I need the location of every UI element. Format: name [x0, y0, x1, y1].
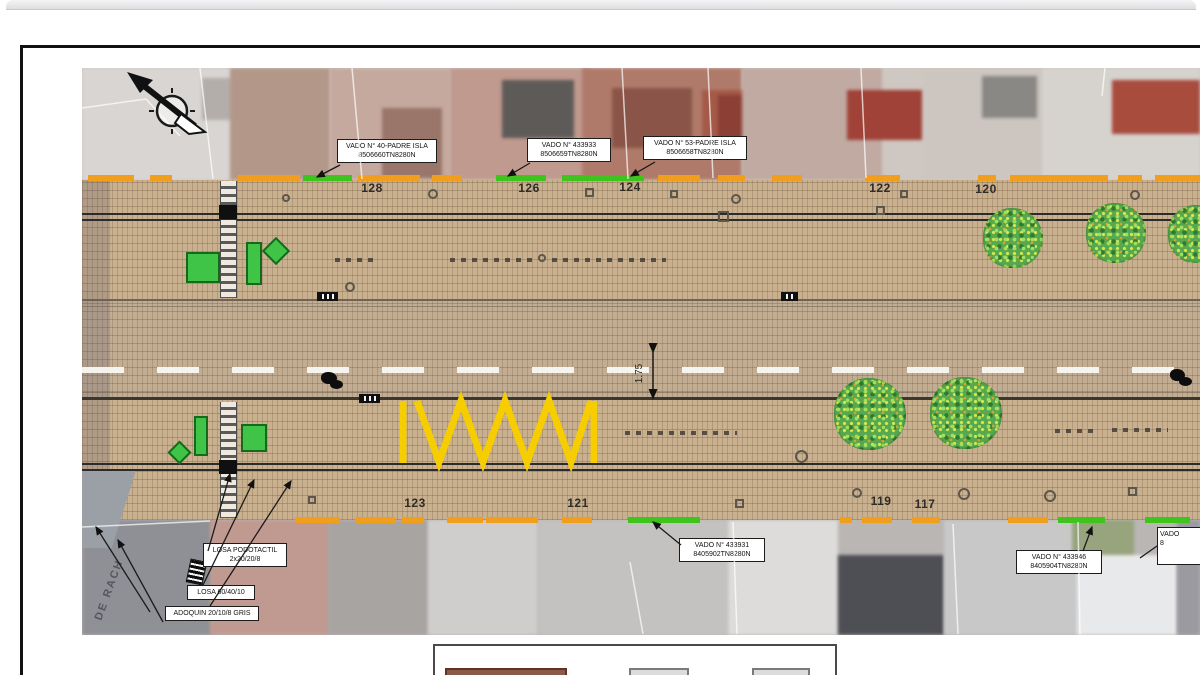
- bollard-strip-icon: [781, 292, 798, 301]
- callout-line: VADO N° 433946: [1019, 553, 1099, 562]
- facade-dash-orange: [718, 175, 745, 181]
- house-number: 120: [975, 182, 997, 196]
- facade-dash-orange: [150, 175, 172, 181]
- callout-vado433946: VADO N° 433946 8405904TN8280N: [1016, 550, 1102, 574]
- sheet-border: [20, 45, 1200, 48]
- facade-dash-orange: [295, 517, 340, 523]
- aerial-patch: [328, 520, 428, 635]
- facade-dash-orange: [978, 175, 996, 181]
- facade-dash-orange: [912, 517, 940, 523]
- bollard-strip-icon: [317, 292, 338, 301]
- callout-line: VADO N° 40-PADRE ISLA: [340, 142, 434, 151]
- tree-icon: [983, 208, 1043, 268]
- aerial-patch: [847, 90, 925, 140]
- manhole-cover: [795, 450, 808, 463]
- manhole-cover: [345, 282, 355, 292]
- house-number: 126: [518, 181, 540, 195]
- aerial-patch: [982, 76, 1037, 118]
- facade-dash-orange: [355, 517, 395, 523]
- manhole-cover: [731, 194, 741, 204]
- aerial-patch: [944, 520, 1084, 635]
- legend-box: [433, 644, 837, 675]
- house-number: 119: [871, 494, 892, 508]
- house-number: 128: [361, 181, 383, 195]
- callout-line: LOSA PODOTACTIL: [206, 546, 284, 555]
- callout-line: 8405904TN8280N: [1019, 562, 1099, 571]
- legend-swatch-grey: [752, 668, 810, 675]
- bench-marker: [194, 416, 208, 456]
- callout-vado433931: VADO N° 433931 8405902TN8280N: [679, 538, 765, 562]
- callout-line: ADOQUIN 20/10/8 GRIS: [168, 609, 256, 618]
- facade-dash-orange: [486, 517, 538, 523]
- parked-bike-icon: [1170, 369, 1185, 381]
- callout-line: LOSA 60/40/10: [190, 588, 252, 597]
- manhole-cover: [1044, 490, 1056, 502]
- joint-marks: [450, 258, 534, 262]
- callout-line: VADO N° 433931: [682, 541, 762, 550]
- callout-line: 8506658TN8280N: [646, 148, 744, 157]
- callout-line: 2x20/20/8: [206, 555, 284, 564]
- aerial-patch: [230, 68, 330, 180]
- vado-dash-green: [303, 175, 352, 181]
- sidewalk-bottom: [82, 470, 1200, 520]
- lane-line: [82, 397, 1200, 400]
- lane-line: [82, 306, 1200, 307]
- parked-bike-icon: [321, 372, 337, 384]
- joint-marks: [1112, 428, 1168, 432]
- house-number: 122: [869, 181, 891, 195]
- callout-vado40: VADO N° 40-PADRE ISLA 8506660TN8280N: [337, 139, 437, 163]
- vado-dash-green: [628, 517, 700, 523]
- manhole-cover: [282, 194, 290, 202]
- facade-dash-orange: [432, 175, 462, 181]
- house-number: 117: [915, 497, 936, 511]
- facade-dash-orange: [1155, 175, 1200, 181]
- tree-icon: [834, 378, 906, 450]
- planter-marker: [241, 424, 267, 452]
- pedestrian-crossing-strip: [220, 472, 237, 518]
- facade-dash-orange: [658, 175, 700, 181]
- planter-marker: [186, 252, 220, 283]
- facade-dash-orange: [1008, 517, 1048, 523]
- bench-marker: [246, 242, 262, 285]
- facade-dash-orange: [402, 517, 424, 523]
- aerial-patch: [428, 520, 538, 635]
- carriageway: [82, 300, 1200, 400]
- utility-box: [1128, 487, 1137, 496]
- joint-marks: [552, 258, 666, 262]
- callout-vado433933: VADO N° 433933 8506659TN8280N: [527, 138, 611, 162]
- callout-vado-cutoff: VADO 8: [1157, 527, 1200, 565]
- facade-dash-orange: [447, 517, 483, 523]
- window-title-bar: [6, 0, 1196, 10]
- aerial-patch: [502, 80, 574, 138]
- utility-box: [308, 496, 316, 504]
- screenshot-page: 128 126 124 122 120 123 121 119 117 1.75…: [0, 0, 1200, 675]
- dimension-label: 1.75: [634, 364, 645, 383]
- utility-box: [876, 206, 885, 215]
- house-number: 123: [404, 496, 426, 510]
- callout-losa604010: LOSA 60/40/10: [187, 585, 255, 600]
- callout-line: 8405902TN8280N: [682, 550, 762, 559]
- vado-dash-green: [1145, 517, 1190, 523]
- sheet-border: [20, 45, 23, 675]
- legend-swatch-red: [445, 668, 567, 675]
- facade-dash-orange: [1010, 175, 1108, 181]
- manhole-cover: [428, 189, 438, 199]
- callout-line: 8506660TN8280N: [340, 151, 434, 160]
- bollard-strip-icon: [359, 394, 380, 403]
- joint-marks: [625, 431, 737, 435]
- pedestrian-crossing-strip: [220, 402, 237, 461]
- joint-marks: [335, 258, 379, 262]
- callout-line: VADO N° 433933: [530, 141, 608, 150]
- manhole-cover: [852, 488, 862, 498]
- crossing-junction-marker: [219, 460, 237, 474]
- facade-dash-orange: [238, 175, 300, 181]
- lane-line: [82, 299, 1200, 301]
- curb-line-bottom: [82, 463, 1200, 471]
- lane-line: [82, 392, 1200, 393]
- utility-box: [670, 190, 678, 198]
- callout-line: VADO: [1160, 530, 1200, 539]
- tree-icon: [1086, 203, 1146, 263]
- facade-dash-orange: [562, 517, 592, 523]
- pedestrian-crossing-strip: [220, 220, 237, 298]
- vado-dash-green: [1058, 517, 1105, 523]
- facade-dash-orange: [840, 517, 852, 523]
- callout-line: VADO N° 53-PADRE ISLA: [646, 139, 744, 148]
- utility-box: [735, 499, 744, 508]
- callout-losa-podotactil: LOSA PODOTACTIL 2x20/20/8: [203, 543, 287, 567]
- callout-vado53: VADO N° 53-PADRE ISLA 8506658TN8280N: [643, 136, 747, 160]
- house-number: 121: [567, 496, 589, 510]
- house-number: 124: [619, 180, 641, 194]
- crossing-junction-marker: [219, 205, 237, 219]
- callout-line: 8: [1160, 539, 1200, 548]
- facade-dash-orange: [88, 175, 134, 181]
- manhole-cover: [538, 254, 546, 262]
- utility-box: [585, 188, 594, 197]
- facade-dash-orange: [862, 517, 892, 523]
- aerial-photo-top: [82, 68, 1200, 180]
- utility-box: [900, 190, 908, 198]
- utility-box: [718, 211, 729, 222]
- facade-dash-orange: [1118, 175, 1142, 181]
- manhole-cover: [958, 488, 970, 500]
- facade-dash-orange: [772, 175, 802, 181]
- callout-line: 8506659TN8280N: [530, 150, 608, 159]
- callout-adoquin: ADOQUIN 20/10/8 GRIS: [165, 606, 259, 621]
- tree-icon: [930, 377, 1002, 449]
- sidewalk-top: [82, 180, 1200, 215]
- legend-swatch-grey: [629, 668, 689, 675]
- manhole-cover: [1130, 190, 1140, 200]
- aerial-patch: [838, 555, 944, 635]
- joint-marks: [1055, 429, 1093, 433]
- aerial-patch: [1112, 80, 1200, 134]
